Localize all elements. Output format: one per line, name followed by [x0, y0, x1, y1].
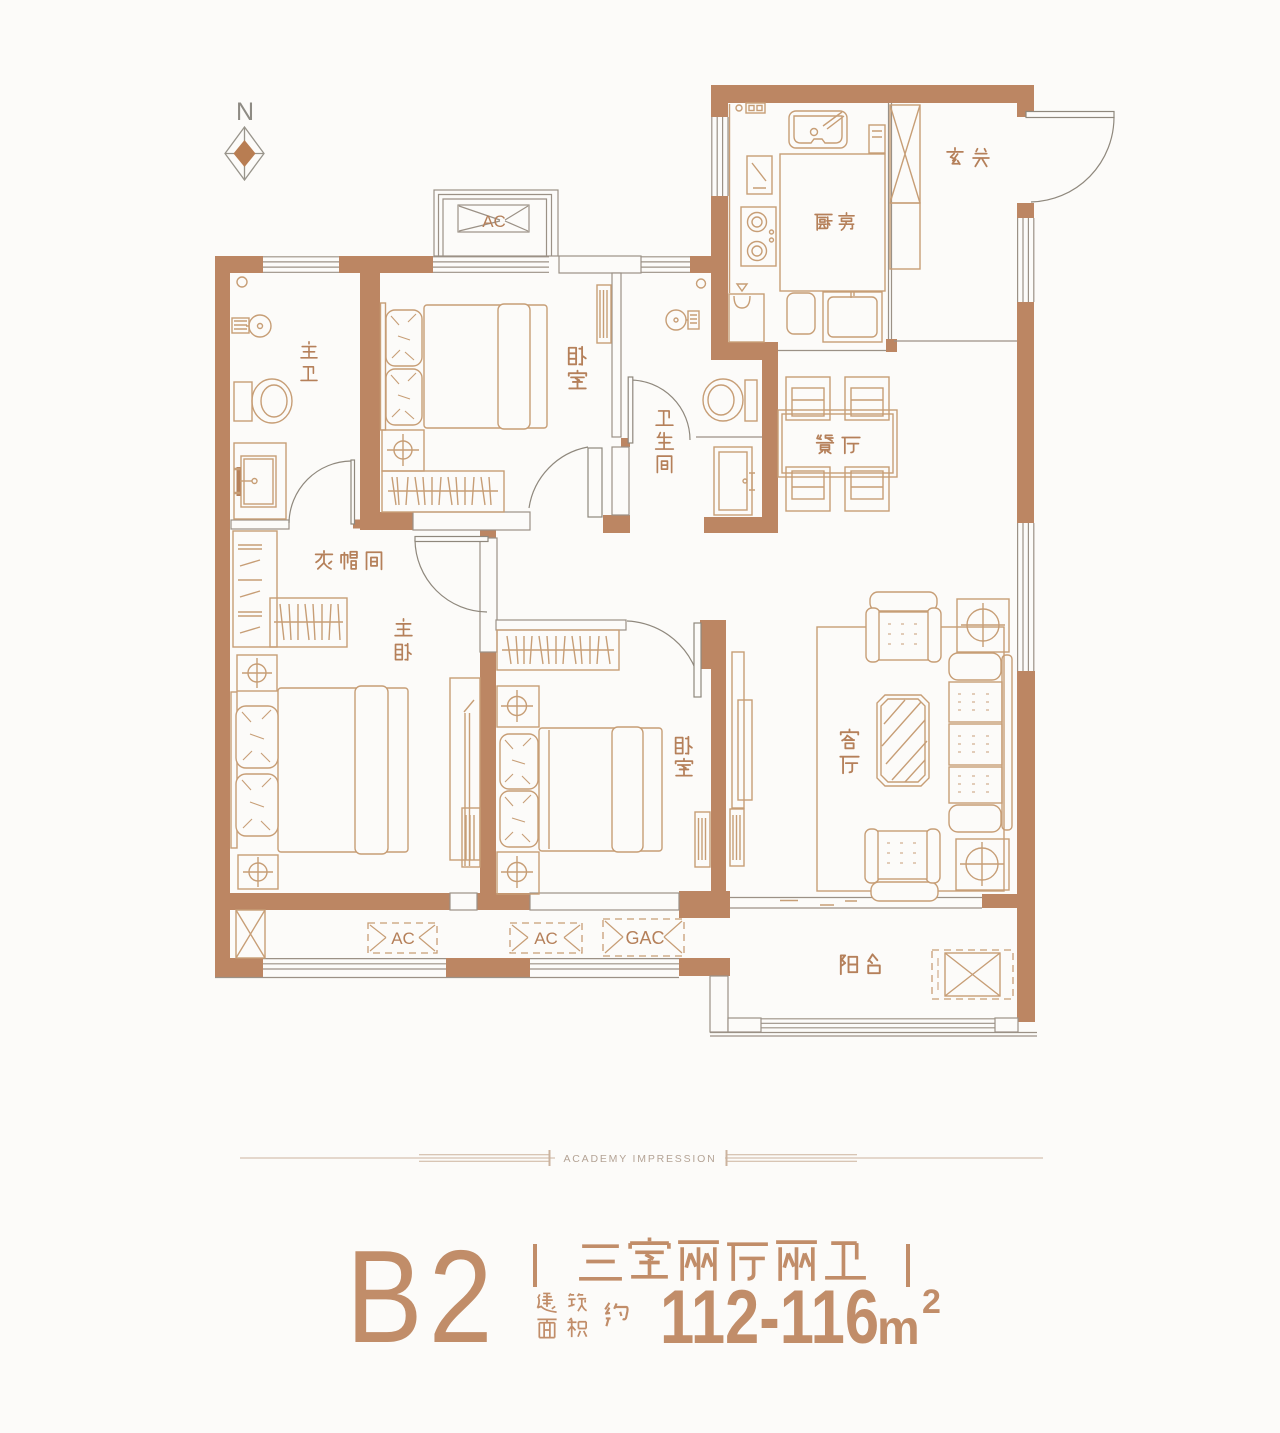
svg-text:m: m: [877, 1302, 920, 1355]
svg-text:N: N: [236, 98, 254, 126]
svg-text:112-116: 112-116: [660, 1274, 879, 1360]
svg-text:GAC: GAC: [625, 928, 664, 948]
svg-text:B2: B2: [346, 1224, 499, 1371]
svg-text:ACADEMY IMPRESSION: ACADEMY IMPRESSION: [564, 1153, 717, 1165]
svg-text:AC: AC: [482, 212, 506, 231]
svg-text:2: 2: [922, 1283, 941, 1321]
svg-text:AC: AC: [534, 929, 558, 948]
svg-text:AC: AC: [391, 929, 415, 948]
